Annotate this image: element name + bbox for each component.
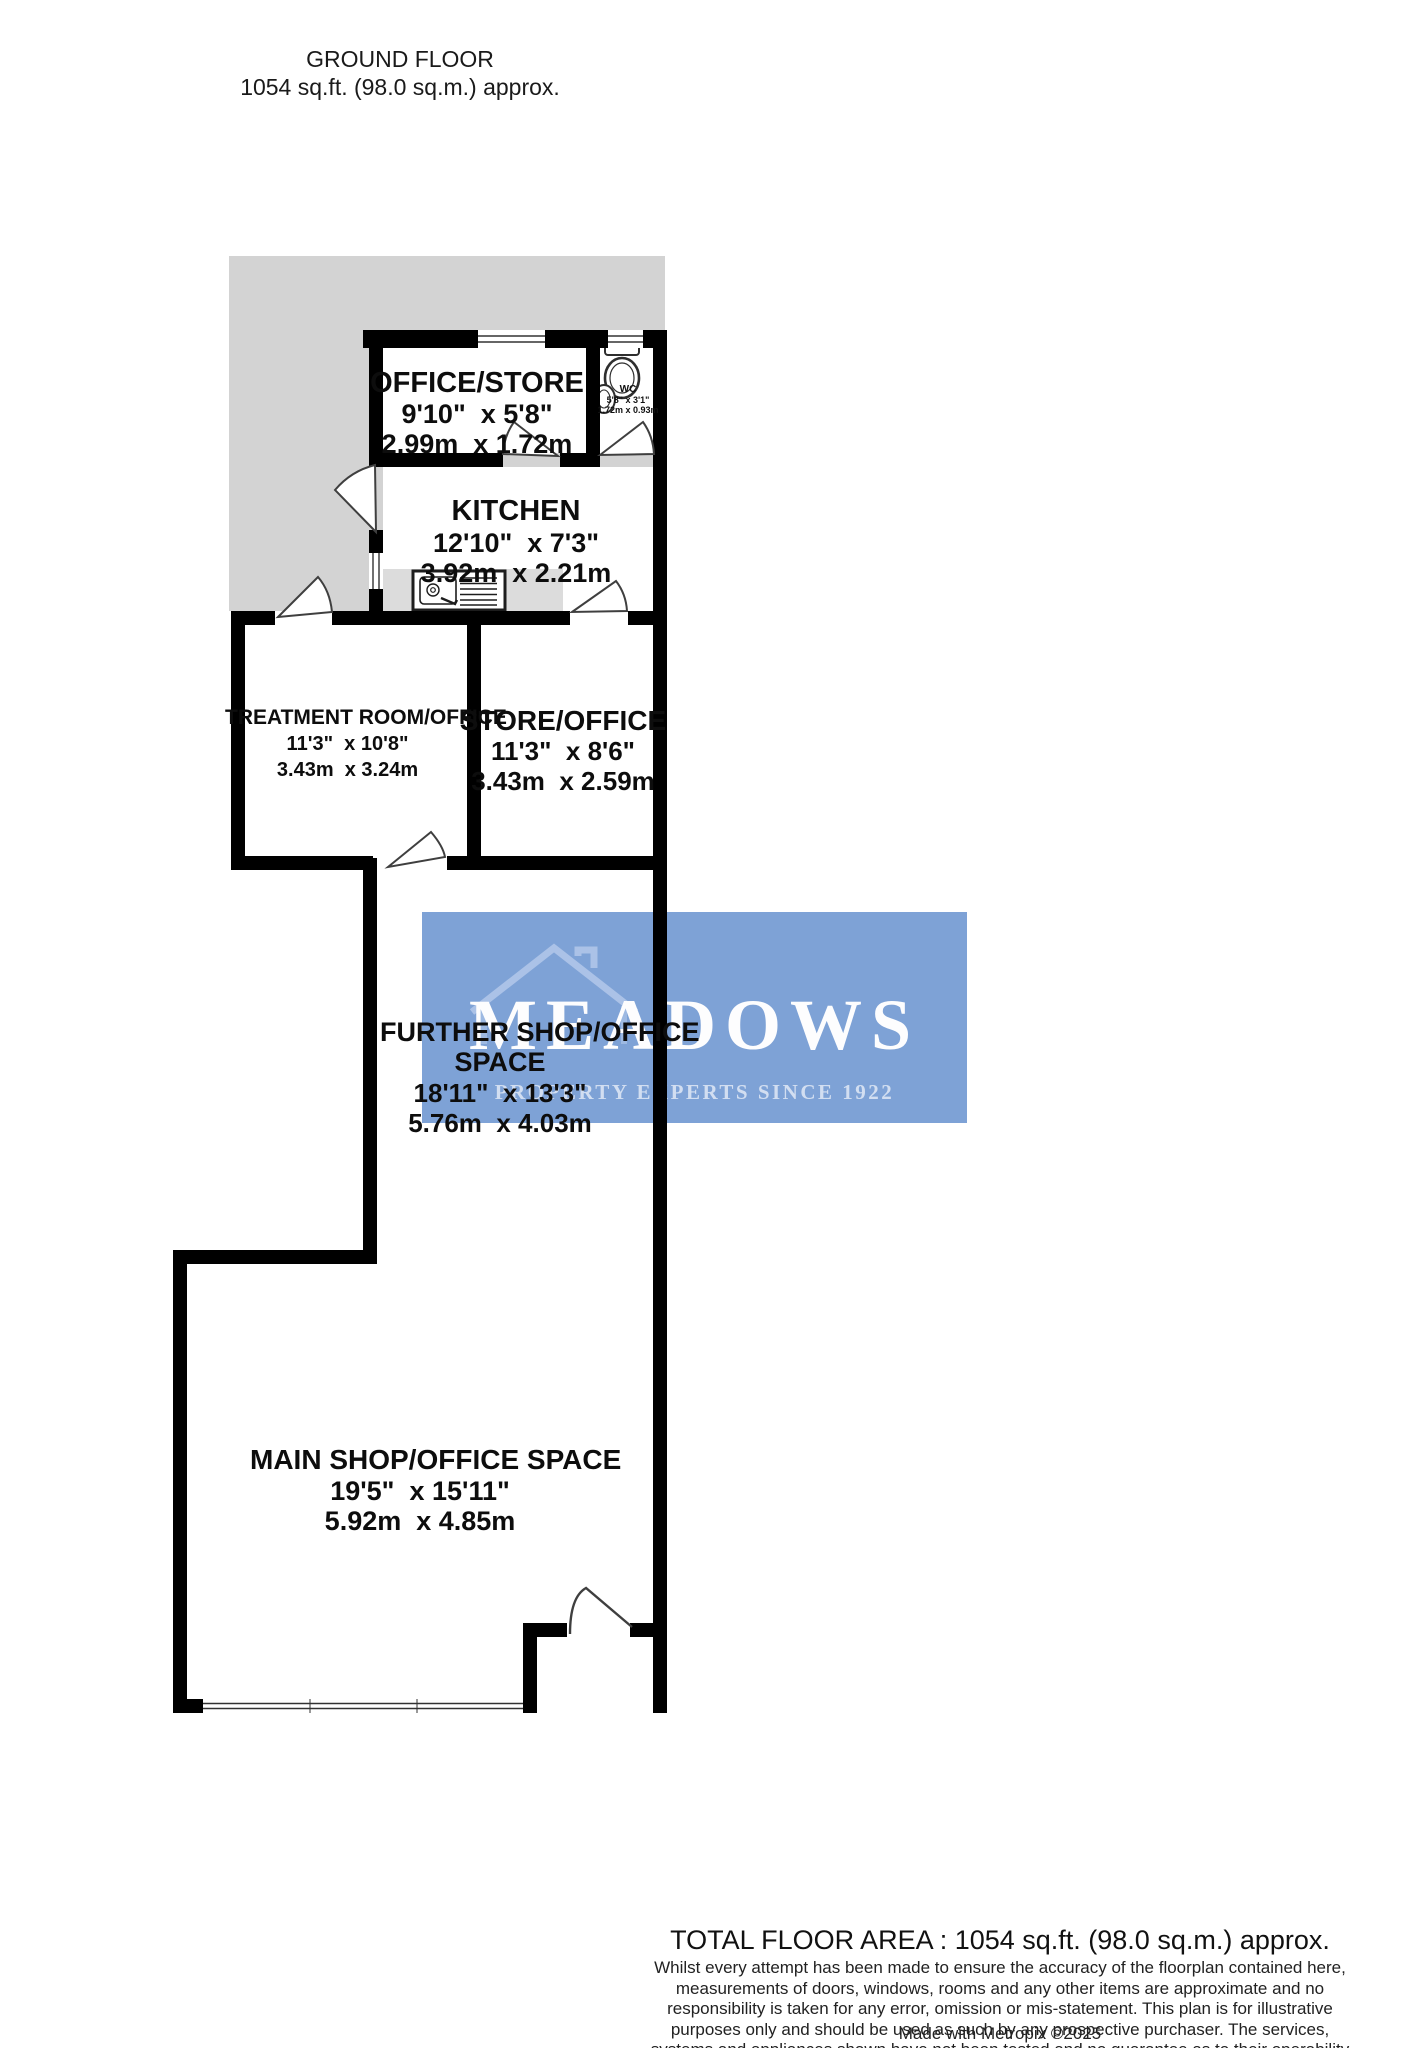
wall-segment bbox=[173, 1699, 203, 1713]
door-swing bbox=[600, 422, 654, 455]
room-label-store-office-name: STORE/OFFICE bbox=[453, 706, 673, 735]
door-swing bbox=[335, 465, 376, 532]
metropix-credit: Made with Metropix ©2025 bbox=[648, 2024, 1352, 2044]
wall-segment bbox=[630, 1623, 653, 1637]
door-swing bbox=[278, 577, 332, 617]
room-label-office-store-metric: 2.99m x 1.72m bbox=[364, 430, 590, 458]
room-label-further-shop-imperial: 18'11" x 13'3" bbox=[380, 1080, 620, 1107]
window bbox=[369, 553, 383, 589]
room-label-store-office-metric: 3.43m x 2.59m bbox=[453, 768, 673, 795]
floorplan-canvas: GROUND FLOOR 1054 sq.ft. (98.0 sq.m.) ap… bbox=[0, 0, 1405, 2048]
room-label-main-shop-metric: 5.92m x 4.85m bbox=[250, 1507, 590, 1535]
room-label-further-shop-metric: 5.76m x 4.03m bbox=[380, 1110, 620, 1137]
room-label-office-store-name: OFFICE/STORE bbox=[364, 368, 590, 398]
room-label-further-shop-name2: SPACE bbox=[380, 1048, 620, 1076]
room-label-kitchen-name: KITCHEN bbox=[396, 496, 636, 526]
room-label-treatment-metric: 3.43m x 3.24m bbox=[225, 760, 470, 781]
room-label-store-office-imperial: 11'3" x 8'6" bbox=[453, 738, 673, 765]
wall-segment bbox=[332, 611, 570, 625]
room-label-treatment-name: TREATMENT ROOM/OFFICE bbox=[225, 707, 470, 729]
room-label-main-shop-name: MAIN SHOP/OFFICE SPACE bbox=[250, 1445, 590, 1474]
window bbox=[608, 330, 643, 348]
room-label-wc-imperial: 5'8" x 3'1" bbox=[592, 395, 664, 405]
wall-segment bbox=[628, 611, 667, 625]
room-label-main-shop-imperial: 19'5" x 15'11" bbox=[250, 1477, 590, 1505]
room-label-kitchen-imperial: 12'10" x 7'3" bbox=[396, 529, 636, 557]
wall-segment bbox=[523, 1623, 567, 1637]
shopfront-window bbox=[203, 1699, 523, 1713]
room-label-wc-metric: 1.72m x 0.93m bbox=[592, 405, 664, 415]
door-swing bbox=[388, 832, 445, 867]
room-label-treatment-imperial: 11'3" x 10'8" bbox=[225, 734, 470, 755]
wall-segment bbox=[231, 856, 373, 870]
total-floor-area: TOTAL FLOOR AREA : 1054 sq.ft. (98.0 sq.… bbox=[600, 1925, 1400, 1956]
window bbox=[478, 330, 545, 348]
wall-segment bbox=[173, 1250, 377, 1264]
room-label-kitchen-metric: 3.92m x 2.21m bbox=[396, 559, 636, 587]
room-label-office-store-imperial: 9'10" x 5'8" bbox=[364, 400, 590, 428]
floorplan-walls-layer bbox=[0, 0, 1405, 2048]
wall-segment bbox=[173, 1250, 187, 1713]
door-swing bbox=[570, 1588, 632, 1634]
room-label-wc-name: WC bbox=[592, 384, 664, 395]
room-label-further-shop-name1: FURTHER SHOP/OFFICE bbox=[380, 1018, 620, 1046]
wall-segment bbox=[231, 611, 275, 625]
wall-segment bbox=[363, 858, 377, 1264]
wall-segment bbox=[447, 856, 667, 870]
wall-segment bbox=[369, 530, 383, 553]
